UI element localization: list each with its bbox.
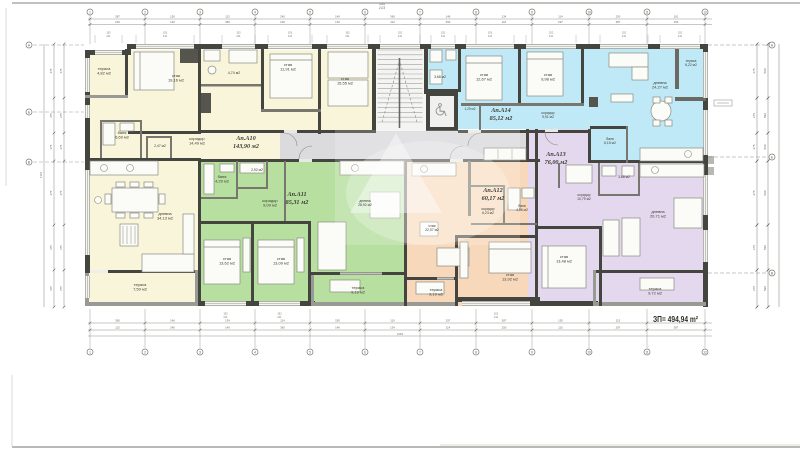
svg-text:134: 134 — [502, 15, 507, 19]
svg-text:360: 360 — [390, 15, 395, 19]
svg-text:134: 134 — [390, 326, 395, 330]
svg-text:275: 275 — [59, 245, 63, 250]
svg-text:360: 360 — [225, 20, 230, 24]
svg-text:11: 11 — [645, 10, 649, 14]
svg-text:275: 275 — [59, 144, 63, 149]
svg-text:211: 211 — [398, 34, 403, 38]
svg-text:297: 297 — [558, 20, 563, 24]
svg-text:13,09 м2: 13,09 м2 — [273, 261, 290, 266]
svg-text:150: 150 — [674, 20, 679, 24]
svg-text:275: 275 — [752, 286, 756, 291]
svg-text:152: 152 — [277, 312, 282, 316]
svg-text:590: 590 — [763, 190, 767, 195]
svg-text:8: 8 — [475, 10, 477, 14]
svg-text:146: 146 — [335, 326, 340, 330]
svg-text:5: 5 — [309, 10, 311, 14]
svg-text:24,27 м2: 24,27 м2 — [652, 85, 669, 90]
svg-text:4,29 м2: 4,29 м2 — [215, 179, 230, 184]
svg-text:152: 152 — [163, 31, 168, 35]
svg-text:Ап.А12: Ап.А12 — [482, 187, 502, 194]
svg-text:211: 211 — [223, 315, 228, 319]
svg-text:12,67 м2: 12,67 м2 — [476, 77, 493, 82]
svg-text:297: 297 — [616, 326, 621, 330]
svg-text:Ап.А10: Ап.А10 — [235, 135, 255, 142]
svg-text:250: 250 — [616, 15, 621, 19]
svg-text:143,90 м2: 143,90 м2 — [233, 143, 259, 150]
svg-text:590: 590 — [763, 113, 767, 118]
svg-text:275: 275 — [752, 68, 756, 73]
svg-text:85,12 м2: 85,12 м2 — [490, 115, 513, 122]
svg-text:240: 240 — [674, 319, 679, 323]
svg-text:275: 275 — [752, 245, 756, 250]
svg-text:Ап.А13: Ап.А13 — [545, 151, 565, 158]
svg-text:152: 152 — [106, 31, 111, 35]
svg-text:113: 113 — [225, 15, 230, 19]
svg-text:10,79 м2: 10,79 м2 — [577, 197, 591, 201]
svg-text:240: 240 — [115, 20, 120, 24]
svg-text:375: 375 — [49, 286, 53, 291]
svg-text:211: 211 — [345, 34, 350, 38]
svg-text:4: 4 — [254, 350, 256, 354]
svg-text:211: 211 — [678, 34, 683, 38]
svg-text:9,19 м2: 9,19 м2 — [429, 292, 444, 297]
svg-text:152: 152 — [345, 31, 350, 35]
svg-text:15,55 м2: 15,55 м2 — [337, 81, 354, 86]
svg-text:113: 113 — [616, 319, 621, 323]
svg-text:3,68 м2: 3,68 м2 — [618, 175, 630, 179]
svg-text:1107: 1107 — [39, 172, 43, 178]
svg-text:152: 152 — [494, 312, 499, 316]
svg-text:360: 360 — [115, 319, 120, 323]
svg-text:6: 6 — [364, 350, 366, 354]
svg-text:11: 11 — [645, 350, 649, 354]
svg-text:2164: 2164 — [397, 332, 404, 336]
svg-text:7: 7 — [419, 10, 421, 14]
svg-text:275: 275 — [752, 190, 756, 195]
svg-text:590: 590 — [763, 144, 767, 149]
svg-text:275: 275 — [59, 190, 63, 195]
svg-text:240: 240 — [170, 326, 175, 330]
svg-text:113: 113 — [115, 326, 120, 330]
svg-text:140: 140 — [170, 20, 175, 24]
svg-text:4,82 м2: 4,82 м2 — [97, 71, 112, 76]
svg-text:211: 211 — [106, 34, 111, 38]
svg-text:3: 3 — [199, 10, 201, 14]
svg-text:Б: Б — [771, 155, 773, 159]
svg-text:34,13 м2: 34,13 м2 — [157, 216, 174, 221]
svg-text:152: 152 — [441, 31, 446, 35]
svg-text:9,09 м2: 9,09 м2 — [263, 203, 278, 208]
svg-text:146: 146 — [170, 319, 175, 323]
svg-text:110: 110 — [390, 319, 395, 323]
svg-text:590: 590 — [763, 286, 767, 291]
svg-text:60,17 м2: 60,17 м2 — [482, 195, 505, 202]
svg-text:211: 211 — [441, 34, 446, 38]
svg-text:9,72 м2: 9,72 м2 — [648, 291, 663, 296]
svg-text:250: 250 — [446, 20, 451, 24]
svg-text:Б: Б — [28, 110, 30, 114]
svg-text:4,74 м2: 4,74 м2 — [228, 71, 240, 75]
svg-text:114: 114 — [280, 319, 285, 323]
svg-text:150: 150 — [170, 15, 175, 19]
svg-text:2,47 м2: 2,47 м2 — [154, 144, 166, 148]
svg-text:2,03: 2,03 — [379, 6, 385, 10]
svg-text:375: 375 — [49, 144, 53, 149]
svg-text:11,91 м2: 11,91 м2 — [280, 67, 297, 72]
svg-text:211: 211 — [622, 34, 627, 38]
svg-text:110: 110 — [674, 15, 679, 19]
svg-text:152: 152 — [622, 31, 627, 35]
svg-text:12: 12 — [703, 350, 707, 354]
svg-text:275: 275 — [752, 113, 756, 118]
svg-text:85,31 м2: 85,31 м2 — [286, 199, 309, 206]
svg-text:9: 9 — [531, 10, 533, 14]
svg-text:590: 590 — [763, 68, 767, 73]
svg-text:360: 360 — [280, 326, 285, 330]
svg-text:275: 275 — [752, 144, 756, 149]
svg-text:22,07 м2: 22,07 м2 — [425, 228, 439, 232]
svg-text:152: 152 — [549, 31, 554, 35]
svg-text:4: 4 — [254, 10, 256, 14]
svg-text:5: 5 — [309, 350, 311, 354]
svg-text:8: 8 — [475, 350, 477, 354]
svg-text:152: 152 — [223, 312, 228, 316]
svg-text:76,00 м2: 76,00 м2 — [545, 159, 568, 166]
svg-text:387: 387 — [502, 319, 507, 323]
svg-text:Ап.А11: Ап.А11 — [286, 191, 306, 198]
svg-text:114: 114 — [446, 326, 451, 330]
svg-text:9,91 м2: 9,91 м2 — [542, 115, 554, 119]
svg-text:140: 140 — [225, 326, 230, 330]
svg-text:375: 375 — [49, 68, 53, 73]
svg-text:114: 114 — [558, 15, 563, 19]
svg-text:12: 12 — [703, 10, 707, 14]
svg-text:110: 110 — [558, 326, 563, 330]
svg-text:3,68 м2: 3,68 м2 — [434, 75, 446, 79]
svg-text:146: 146 — [446, 15, 451, 19]
svg-text:275: 275 — [59, 286, 63, 291]
svg-text:275: 275 — [59, 68, 63, 73]
svg-text:1,29 м2: 1,29 м2 — [464, 107, 475, 111]
svg-text:387: 387 — [115, 15, 120, 19]
svg-text:14,49 м2: 14,49 м2 — [189, 141, 206, 146]
svg-text:9,98 м2: 9,98 м2 — [541, 77, 556, 82]
svg-text:6,69 м2: 6,69 м2 — [115, 135, 130, 140]
svg-text:134: 134 — [225, 319, 230, 323]
svg-text:590: 590 — [763, 245, 767, 250]
svg-text:211: 211 — [277, 315, 282, 319]
svg-text:6,15 м2: 6,15 м2 — [604, 141, 616, 145]
svg-text:211: 211 — [494, 315, 499, 319]
svg-text:1: 1 — [89, 10, 91, 14]
svg-text:211: 211 — [288, 34, 293, 38]
svg-text:20,71 м2: 20,71 м2 — [650, 214, 667, 219]
svg-text:6: 6 — [364, 10, 366, 14]
svg-text:9: 9 — [531, 350, 533, 354]
svg-text:Ап.А14: Ап.А14 — [490, 107, 510, 114]
svg-text:В: В — [28, 160, 30, 164]
svg-text:134: 134 — [335, 20, 340, 24]
svg-text:6,23 м2: 6,23 м2 — [482, 211, 494, 215]
svg-text:1: 1 — [89, 350, 91, 354]
svg-text:152: 152 — [488, 31, 493, 35]
svg-text:2: 2 — [144, 350, 146, 354]
svg-text:211: 211 — [163, 34, 168, 38]
svg-text:150: 150 — [558, 319, 563, 323]
svg-text:10: 10 — [587, 350, 591, 354]
svg-text:152: 152 — [678, 31, 683, 35]
svg-text:28,92 м2: 28,92 м2 — [358, 203, 372, 207]
svg-text:297: 297 — [446, 319, 451, 323]
svg-text:387: 387 — [674, 326, 679, 330]
svg-text:3: 3 — [199, 350, 201, 354]
svg-text:211: 211 — [488, 34, 493, 38]
svg-text:13,62 м2: 13,62 м2 — [219, 261, 236, 266]
svg-text:152: 152 — [398, 31, 403, 35]
svg-text:211: 211 — [236, 34, 241, 38]
svg-text:В: В — [771, 271, 773, 275]
svg-text:110: 110 — [502, 20, 507, 24]
svg-text:211: 211 — [549, 34, 554, 38]
svg-text:114: 114 — [390, 20, 395, 24]
svg-text:7,59 м2: 7,59 м2 — [133, 287, 148, 292]
svg-text:375: 375 — [49, 245, 53, 250]
svg-text:375: 375 — [49, 190, 53, 195]
svg-text:375: 375 — [49, 113, 53, 118]
svg-text:7: 7 — [419, 350, 421, 354]
svg-text:240: 240 — [280, 15, 285, 19]
svg-text:2: 2 — [144, 10, 146, 14]
svg-text:19,16 м2: 19,16 м2 — [168, 78, 185, 83]
svg-text:10: 10 — [587, 10, 591, 14]
svg-text:275: 275 — [59, 113, 63, 118]
svg-text:6,22 м2: 6,22 м2 — [685, 63, 697, 67]
svg-text:9,19 м2: 9,19 м2 — [351, 290, 366, 295]
svg-text:152: 152 — [288, 31, 293, 35]
svg-text:250: 250 — [502, 326, 507, 330]
svg-text:140: 140 — [335, 15, 340, 19]
svg-text:4,96 м2: 4,96 м2 — [516, 208, 528, 212]
svg-text:2,92 м2: 2,92 м2 — [251, 168, 263, 172]
svg-text:250: 250 — [335, 319, 340, 323]
svg-text:146: 146 — [280, 20, 285, 24]
svg-text:387: 387 — [616, 20, 621, 24]
svg-text:152: 152 — [236, 31, 241, 35]
svg-text:13,48 м2: 13,48 м2 — [556, 259, 573, 264]
svg-text:13,92 м2: 13,92 м2 — [502, 277, 519, 282]
